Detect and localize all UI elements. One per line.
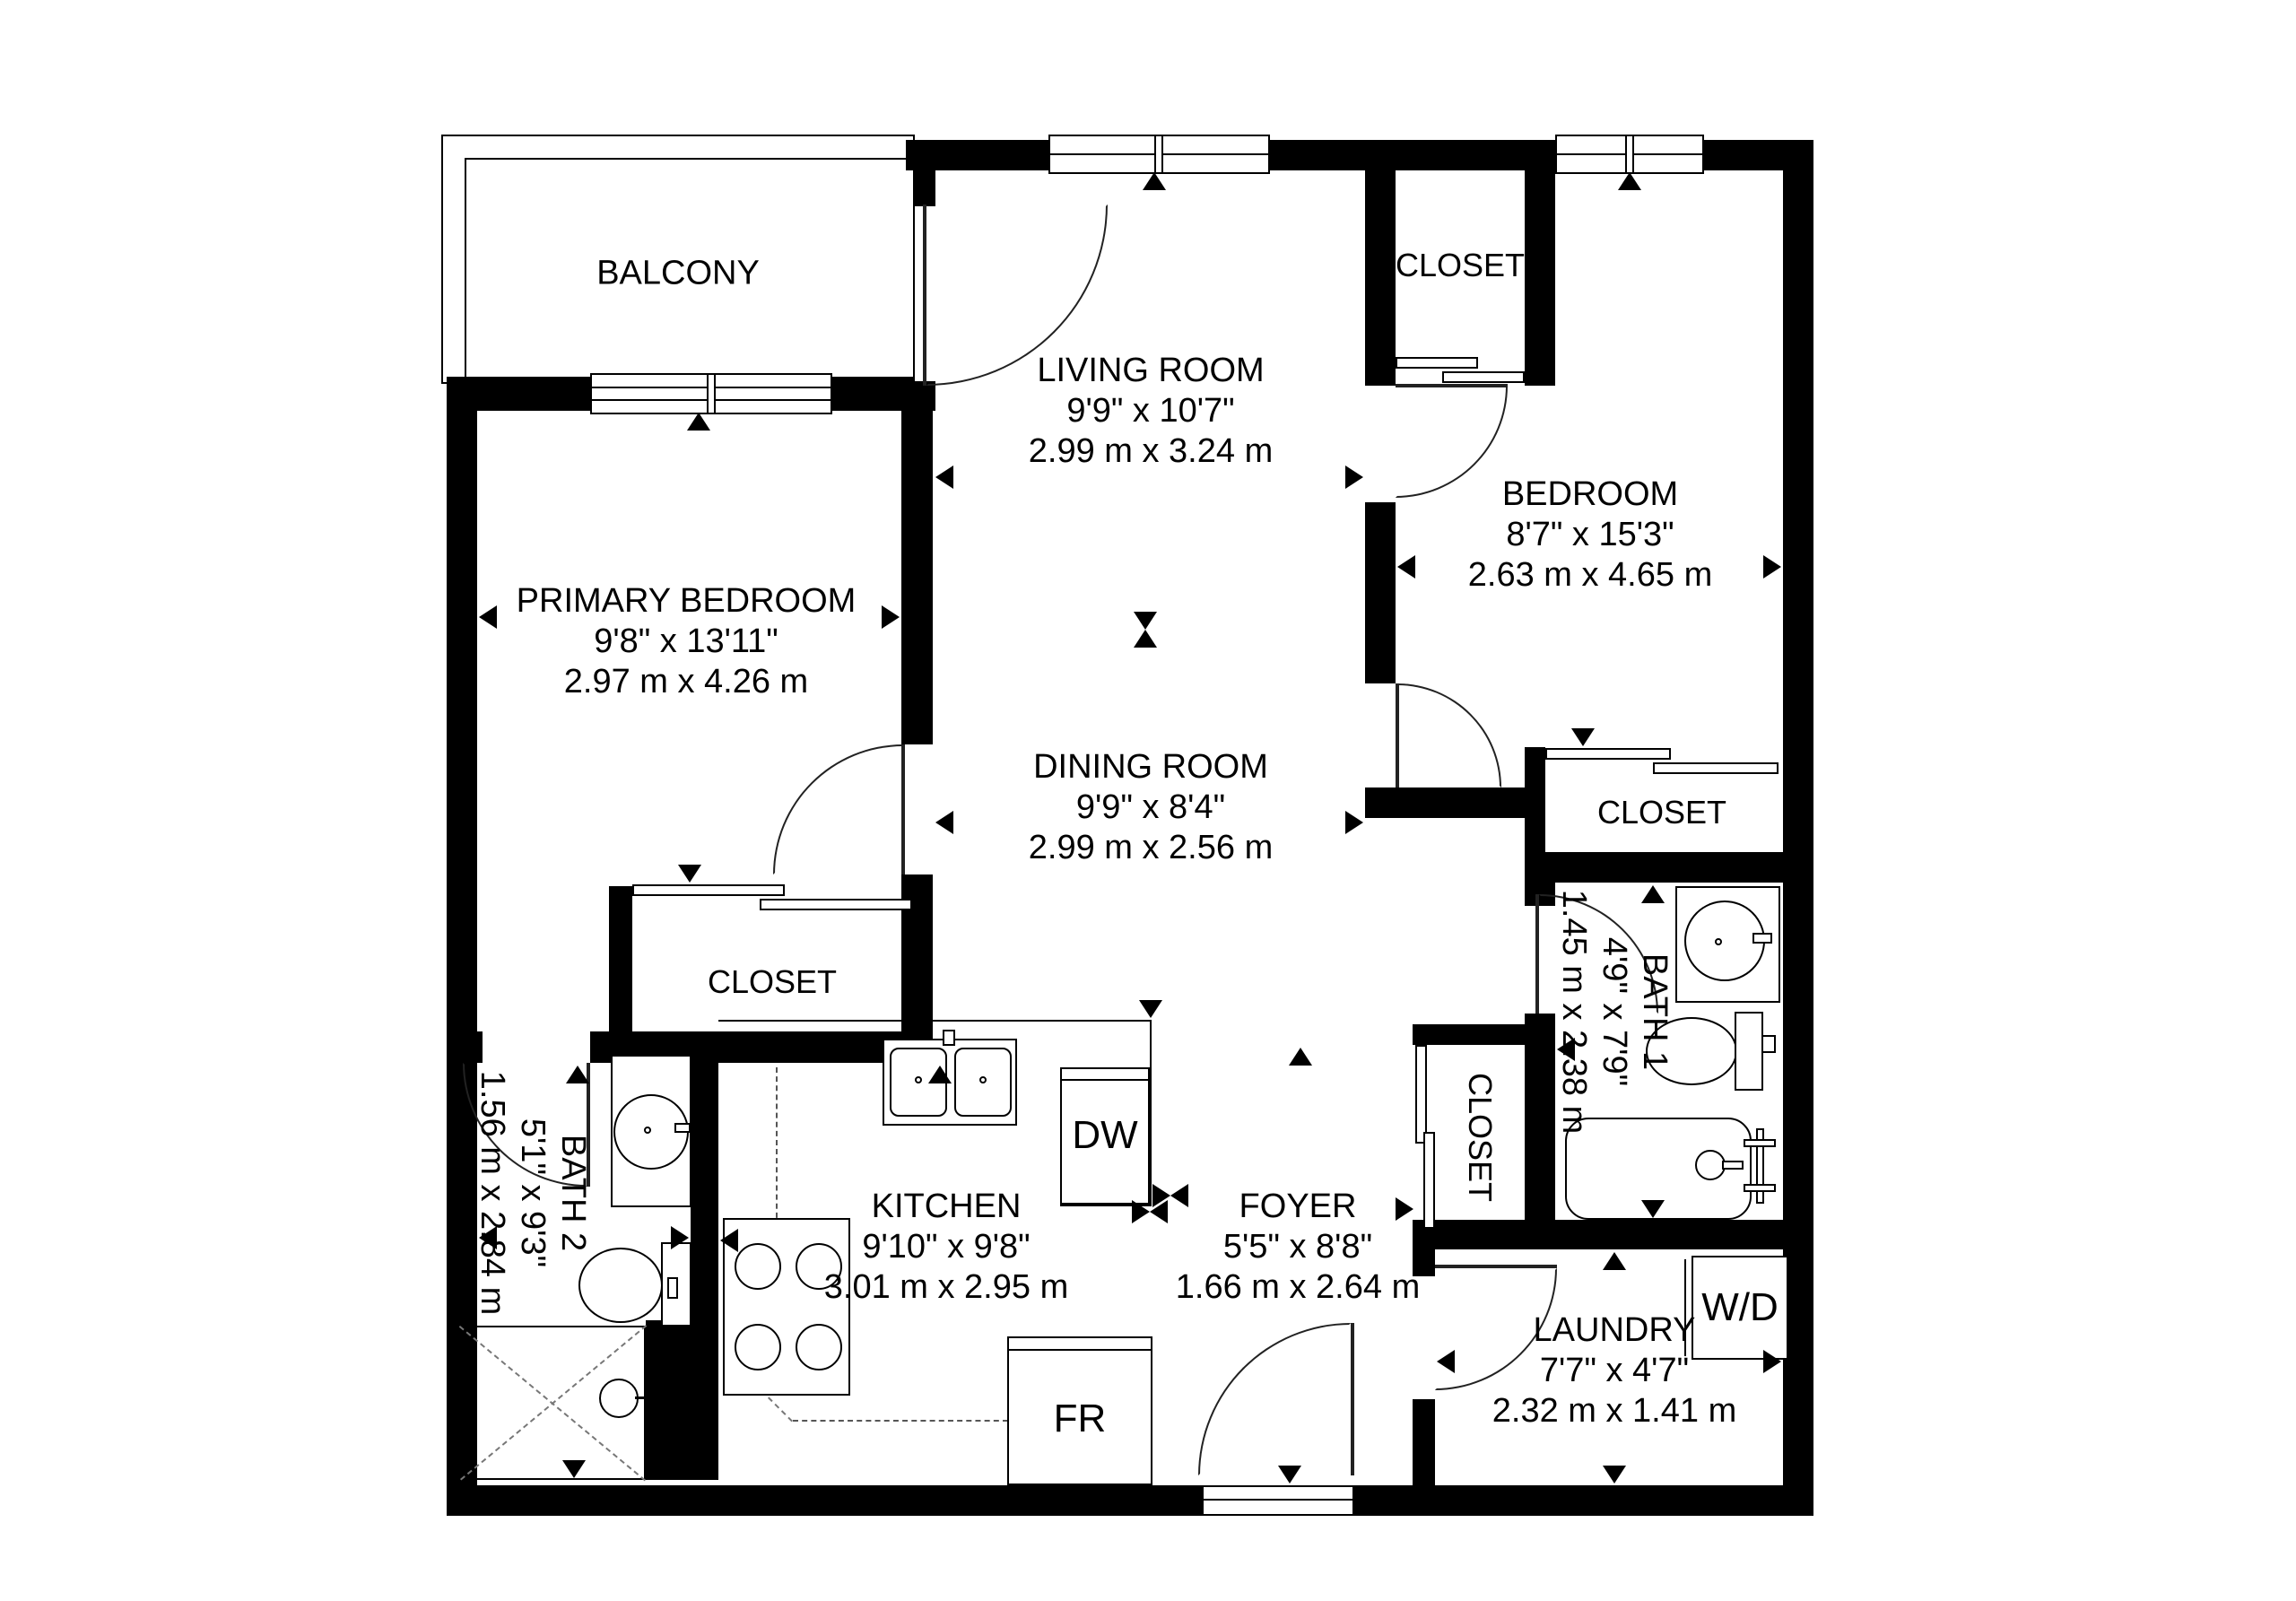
sink-drain <box>644 1127 651 1134</box>
room-dim-imperial: 9'9" x 10'7" <box>1029 391 1273 431</box>
room-dim-imperial: 5'1" x 9'3" <box>513 1071 553 1315</box>
dim-arrow-left <box>935 466 953 489</box>
dim-arrow-right <box>671 1226 689 1249</box>
room-dim-metric: 2.99 m x 3.24 m <box>1029 431 1273 471</box>
room-label-laundry: LAUNDRY 7'7" x 4'7" 2.32 m x 1.41 m <box>1492 1310 1736 1431</box>
dim-arrow-down <box>678 865 701 883</box>
wall <box>1413 1024 1525 1045</box>
sliding-door-panel <box>1423 1132 1435 1229</box>
sink-faucet <box>943 1030 955 1046</box>
toilet-flush <box>1761 1035 1776 1053</box>
floor-plan: DW FR W/D BALCONY LIVING ROOM 9'9" x 10'… <box>0 0 2296 1601</box>
dishwasher-line <box>1062 1079 1148 1081</box>
dim-arrow-up <box>1289 1048 1312 1066</box>
balcony-rail-line <box>465 158 466 384</box>
room-dim-imperial: 9'9" x 8'4" <box>1029 787 1273 828</box>
fridge-line <box>1009 1349 1151 1351</box>
wall <box>1365 502 1396 683</box>
dim-arrow-left <box>1397 555 1415 579</box>
dim-arrow-left <box>1150 1200 1168 1223</box>
sink-faucet <box>674 1123 691 1133</box>
dim-arrow-left <box>479 1226 497 1249</box>
entry-threshold <box>1202 1485 1354 1516</box>
dim-arrow-left <box>479 605 497 629</box>
dim-arrow-right <box>1763 555 1781 579</box>
cabinet-dashed-line <box>793 1420 1008 1422</box>
sink-drain <box>979 1076 987 1083</box>
sink-drain <box>1715 938 1722 945</box>
room-dim-imperial: 7'7" x 4'7" <box>1492 1351 1736 1391</box>
dim-arrow-left <box>720 1229 738 1252</box>
room-dim-metric: 1.66 m x 2.64 m <box>1176 1266 1420 1307</box>
window <box>1048 135 1270 174</box>
sliding-door-panel <box>1545 748 1671 760</box>
shower-head <box>599 1379 639 1418</box>
counter-edge <box>1150 1020 1152 1206</box>
sliding-door-panel <box>1442 371 1525 383</box>
wall <box>477 377 592 411</box>
sink-faucet <box>1752 933 1772 944</box>
dim-arrow-up <box>1143 172 1166 190</box>
dishwasher-label: DW <box>1072 1113 1137 1158</box>
burner <box>796 1324 842 1370</box>
wall <box>913 140 935 206</box>
dim-arrow-right <box>882 605 900 629</box>
dim-arrow-right <box>1763 1350 1781 1373</box>
dim-arrow-right <box>1396 1197 1413 1221</box>
room-name: PRIMARY BEDROOM <box>517 581 857 622</box>
room-dim-metric: 2.32 m x 1.41 m <box>1492 1390 1736 1431</box>
dim-arrow-down <box>1603 1466 1626 1484</box>
sliding-door-panel <box>1415 1045 1427 1144</box>
room-label-bath2: BATH 2 5'1" x 9'3" 1.56 m x 2.84 m <box>473 1071 593 1315</box>
tub-drain <box>1695 1150 1726 1180</box>
door-leaf <box>1351 1323 1354 1475</box>
room-name: KITCHEN <box>824 1187 1068 1227</box>
dim-arrow-up <box>566 1066 589 1083</box>
balcony-label: BALCONY <box>596 254 760 294</box>
dim-arrow-down <box>562 1460 586 1478</box>
room-dim-imperial: 9'8" x 13'11" <box>517 622 857 662</box>
dim-arrow-left <box>1557 1038 1575 1061</box>
wall <box>1525 1014 1555 1220</box>
sliding-door-panel <box>1653 762 1779 774</box>
tub-handle <box>1744 1184 1776 1192</box>
dim-arrow-up <box>1618 172 1641 190</box>
room-label-bath1: BATH 1 4'9" x 7'9" 1.45 m x 2.38 m <box>1554 890 1674 1134</box>
dim-arrow-down <box>1278 1466 1301 1484</box>
dim-arrow-down <box>1571 728 1595 746</box>
dim-arrow-up <box>687 413 710 431</box>
door-arc <box>1198 1323 1351 1475</box>
wall <box>447 377 477 1485</box>
sliding-door-panel <box>760 899 912 910</box>
tub-spout <box>1722 1161 1744 1170</box>
room-dim-metric: 1.56 m x 2.84 m <box>473 1071 513 1315</box>
room-name: BATH 2 <box>552 1071 593 1315</box>
wall <box>447 1031 483 1063</box>
closet-label: CLOSET <box>1396 247 1525 284</box>
room-dim-imperial: 8'7" x 15'3" <box>1468 515 1712 555</box>
dim-arrow-up <box>1603 1252 1626 1270</box>
sliding-door-panel <box>1396 357 1478 369</box>
wall <box>1413 1399 1435 1485</box>
room-dim-metric: 2.97 m x 4.26 m <box>517 661 857 701</box>
dim-arrow-up <box>1641 885 1665 903</box>
dim-arrow-left <box>1437 1350 1455 1373</box>
room-dim-metric: 2.63 m x 4.65 m <box>1468 554 1712 595</box>
room-dim-metric: 2.99 m x 2.56 m <box>1029 827 1273 867</box>
wall <box>1525 852 1783 883</box>
fridge-label: FR <box>1054 1397 1107 1441</box>
wall <box>447 1485 1813 1516</box>
dim-marker-hourglass <box>1134 630 1157 648</box>
dim-marker-hourglass <box>1134 612 1157 630</box>
sliding-door-panel <box>632 884 785 896</box>
wall <box>1365 787 1545 818</box>
counter-edge <box>718 1020 1152 1022</box>
room-name: BEDROOM <box>1468 474 1712 515</box>
tub-handle <box>1744 1139 1776 1147</box>
wall <box>646 1320 718 1480</box>
room-label-bedroom: BEDROOM 8'7" x 15'3" 2.63 m x 4.65 m <box>1468 474 1712 595</box>
room-name: LIVING ROOM <box>1029 351 1273 391</box>
room-dim-imperial: 9'10" x 9'8" <box>824 1227 1068 1267</box>
room-label-primary-bedroom: PRIMARY BEDROOM 9'8" x 13'11" 2.97 m x 4… <box>517 581 857 701</box>
wall <box>1525 170 1555 386</box>
closet-label: CLOSET <box>1597 794 1726 831</box>
room-dim-imperial: 4'9" x 7'9" <box>1595 890 1635 1134</box>
closet-label: CLOSET <box>708 963 837 1001</box>
room-name: FOYER <box>1176 1187 1420 1227</box>
room-label-dining: DINING ROOM 9'9" x 8'4" 2.99 m x 2.56 m <box>1029 747 1273 867</box>
room-name: LAUNDRY <box>1492 1310 1736 1351</box>
closet-label: CLOSET <box>1461 1073 1499 1202</box>
burner <box>735 1243 781 1290</box>
dim-arrow-left <box>935 811 953 834</box>
room-dim-metric: 3.01 m x 2.95 m <box>824 1266 1068 1307</box>
sliding-window <box>590 373 832 414</box>
room-dim-imperial: 5'5" x 8'8" <box>1176 1227 1420 1267</box>
sink-drain <box>915 1076 922 1083</box>
room-name: BATH 1 <box>1634 890 1674 1134</box>
toilet-tank <box>1735 1012 1763 1091</box>
dim-arrow-down <box>1139 1000 1162 1018</box>
dim-arrow-left <box>1170 1184 1188 1207</box>
room-dim-metric: 1.45 m x 2.38 m <box>1554 890 1595 1134</box>
dim-arrow-up <box>928 1066 952 1083</box>
room-label-living: LIVING ROOM 9'9" x 10'7" 2.99 m x 3.24 m <box>1029 351 1273 471</box>
room-name: DINING ROOM <box>1029 747 1273 787</box>
wall <box>901 408 933 744</box>
door-arc <box>1397 683 1501 787</box>
shower-arm <box>635 1397 648 1399</box>
dim-arrow-right <box>1132 1200 1150 1223</box>
balcony-rail-line <box>465 158 913 160</box>
wall <box>1365 170 1396 386</box>
window <box>1555 135 1704 174</box>
door-arc <box>773 744 903 874</box>
wall <box>609 886 632 1031</box>
dim-arrow-down <box>1641 1200 1665 1218</box>
wall <box>1413 1220 1783 1249</box>
wall <box>831 377 915 411</box>
toilet-flush <box>667 1277 678 1299</box>
dim-arrow-right <box>1345 811 1363 834</box>
room-label-foyer: FOYER 5'5" x 8'8" 1.66 m x 2.64 m <box>1176 1187 1420 1307</box>
burner <box>735 1324 781 1370</box>
dim-arrow-right <box>1345 466 1363 489</box>
room-label-kitchen: KITCHEN 9'10" x 9'8" 3.01 m x 2.95 m <box>824 1187 1068 1307</box>
